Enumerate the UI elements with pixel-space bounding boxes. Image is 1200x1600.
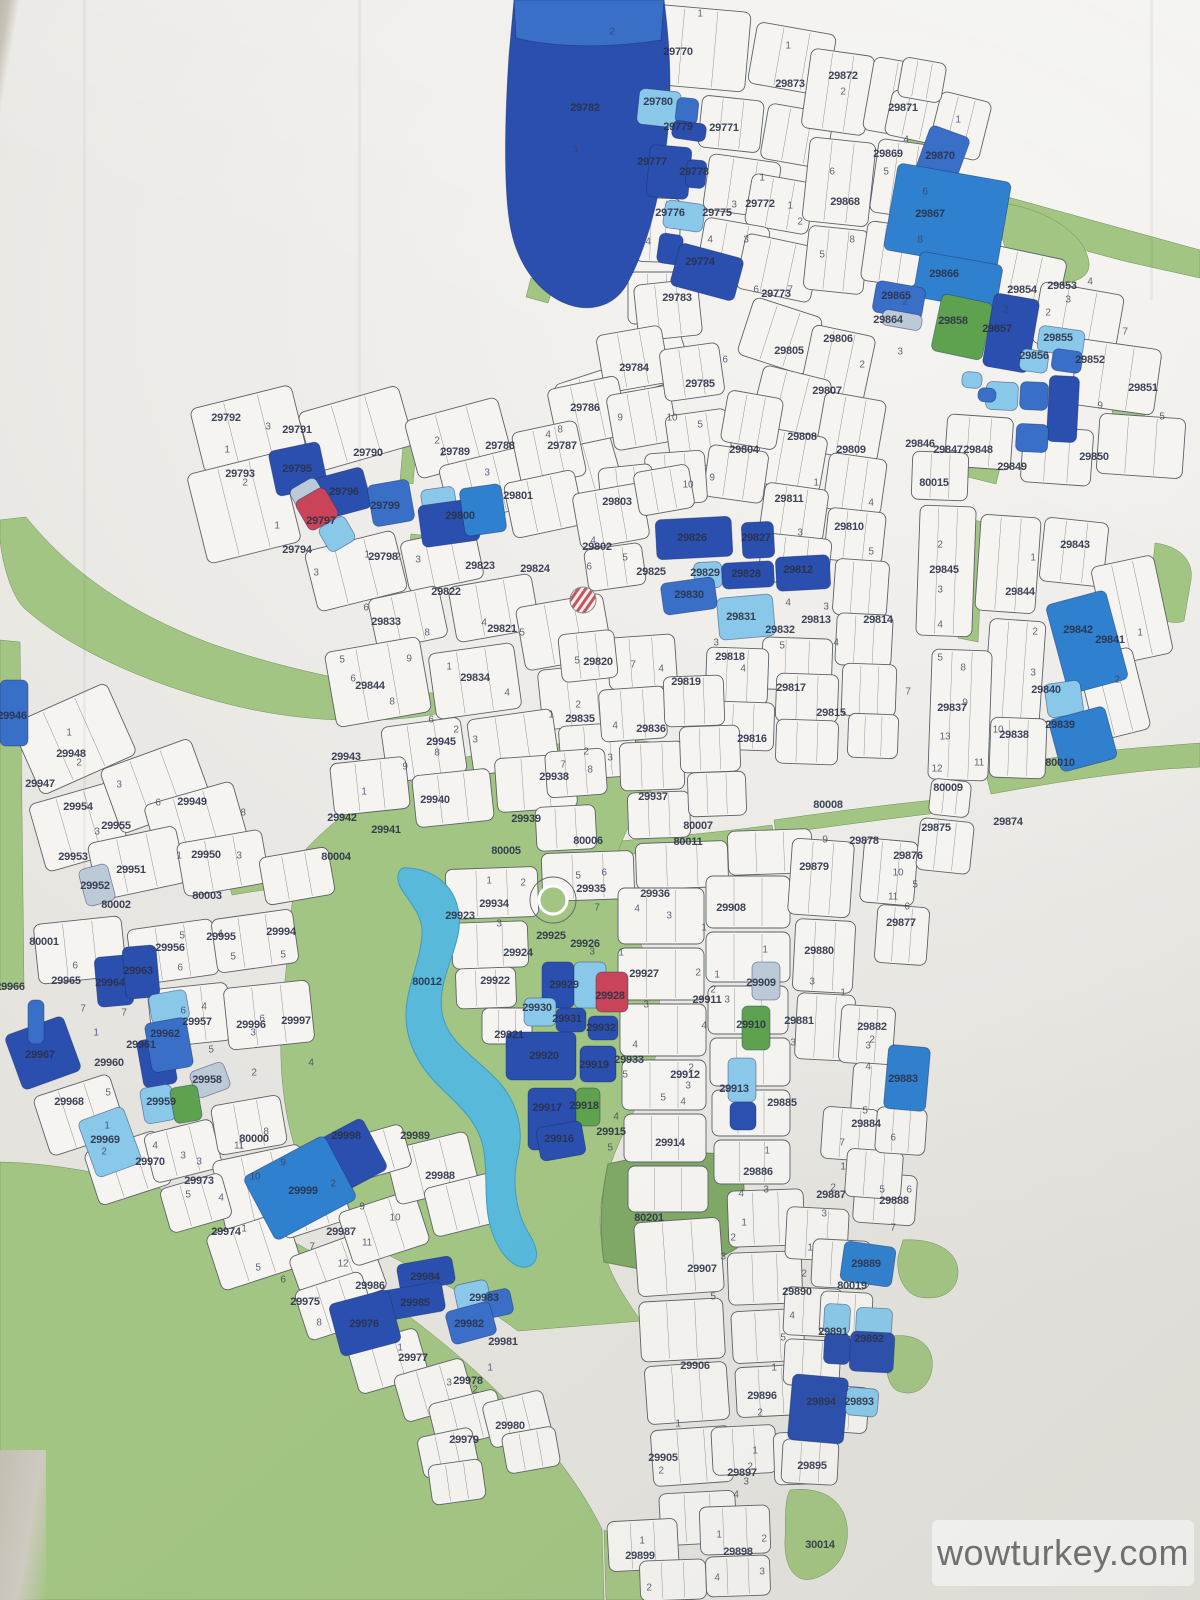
parcel-number: 29874 [993,816,1023,828]
parcel-number: 29915 [596,1126,626,1138]
lot-number: 8 [849,235,854,246]
lot-number: 4 [590,536,595,547]
lot-number: 3 [797,528,802,539]
lot-number: 3 [265,422,270,433]
lot-number: 8 [424,628,429,639]
parcel-number: 29923 [445,910,475,922]
lot-number: 2 [575,700,580,711]
lot-number: 1 [714,970,719,981]
lot-number: 1 [176,851,181,862]
lot-number: 2 [688,1063,693,1074]
lot-number: 2 [801,1269,806,1280]
parcel-number: 29824 [520,563,550,575]
parcel-number: 29847 [933,444,963,456]
parcel-number: 29820 [583,656,613,668]
lot-number: 5 [622,1070,627,1081]
parcel-number: 29854 [1007,284,1037,296]
parcel-number: 29870 [925,150,955,162]
parcel-number: 29806 [823,333,853,345]
parcel-number: 29800 [445,510,475,522]
lot-number: 4 [785,598,790,609]
parcel-number: 29961 [126,1039,156,1051]
lot-number: 1 [639,1536,644,1547]
lot-number: 2 [859,360,864,371]
parcel-number: 29891 [818,1326,848,1338]
lot-number: 6 [601,868,606,879]
parcel-number: 80002 [101,899,131,911]
lot-number: 8 [316,1318,321,1329]
parcel-number: 29850 [1079,451,1109,463]
lot-number: 6 [904,902,909,913]
lot-number: 1 [741,1218,746,1229]
lot-number: 3 [821,1209,826,1220]
lot-number: 10 [683,480,694,491]
parcel-number: 29957 [182,1016,212,1028]
parcel-number: 80008 [813,799,843,811]
lot-number: 1 [104,1121,109,1132]
lot-number: 1 [813,478,818,489]
parcel-number: 29866 [929,268,959,280]
lot-number: 2 [695,968,700,979]
lot-number: 1 [618,948,623,959]
watermark-badge: wowturkey.com [932,1520,1194,1586]
parcel-number: 29836 [636,723,666,735]
parcel-number: 29780 [643,96,673,108]
lot-number: 11 [888,892,898,903]
lot-number: 4 [714,1573,719,1584]
parcel-number: 80007 [683,820,713,832]
lot-number: 4 [645,237,650,248]
lot-number: 5 [862,1106,867,1117]
lot-number: 2 [658,1466,663,1477]
parcel-number: 29796 [329,486,359,498]
parcel-number: 29877 [886,917,916,929]
lot-number: 5 [574,656,579,667]
lot-number: 1 [840,1162,845,1173]
lot-number: 1 [785,41,790,52]
lot-number: 8 [557,425,562,436]
lot-number: 2 [395,552,400,563]
lot-number: 3 [937,585,942,596]
lot-number: 7 [80,1004,85,1015]
lot-number: 2 [869,1035,874,1046]
parcel-number: 29963 [123,965,153,977]
parcel-number: 29998 [331,1130,361,1142]
lot-number: 7 [890,1223,895,1234]
parcel-number: 29875 [921,822,951,834]
parcel-number: 29834 [460,672,490,684]
lot-number: 5 [819,250,824,261]
paper-fold-line [83,0,86,870]
parcel-number: 80005 [491,845,521,857]
lot-number: 1 [66,728,71,739]
parcel-number: 29911 [693,994,722,1006]
lot-number: 3 [743,1477,748,1488]
lot-number: 1 [759,173,764,184]
lot-number: 7 [1122,327,1127,338]
lot-number: 5 [208,1045,213,1056]
lot-number: 4 [868,498,873,509]
parcel-number: 29782 [570,102,600,114]
lot-number: 3 [713,638,718,649]
lot-number: 9 [617,413,622,424]
parcel-number: 29899 [625,1550,655,1562]
lot-number: 3 [589,947,594,958]
parcel-number: 80201 [634,1212,664,1224]
parcel-number: 29983 [469,1292,499,1304]
lot-number: 9 [406,654,411,665]
parcel-number: 29898 [723,1546,753,1558]
lot-number: 5 [575,871,580,882]
parcel-number: 80006 [573,835,603,847]
zoning-map-photo: 2977029771297722977329873298722987129869… [0,0,1200,1600]
parcel-number: 29826 [677,532,707,544]
lot-number: 5 [280,950,285,961]
parcel-number: 29853 [1047,280,1077,292]
lot-number: 3 [666,911,671,922]
parcel-number: 29973 [184,1175,214,1187]
parcel-number: 29910 [736,1019,766,1031]
lot-number: 3 [607,753,612,764]
lot-number: 10 [893,868,904,879]
parcel-number: 29954 [63,801,93,813]
parcel-number: 29791 [282,424,312,436]
lot-number: 1 [274,521,279,532]
parcel-number: 29965 [51,975,81,987]
lot-number: 1 [361,787,366,798]
parcel-number: 29925 [536,930,566,942]
parcel-number: 29955 [101,820,131,832]
parcel-number: 29941 [371,824,401,836]
parcel-number: 29882 [857,1021,887,1033]
lot-number: 4 [504,688,509,699]
lot-number: 4 [1087,277,1092,288]
lot-number: 4 [634,904,639,915]
paper-fold-line [1150,0,1153,300]
parcel-number: 29959 [146,1096,176,1108]
parcel-number: 29969 [90,1134,120,1146]
parcel-number: 80015 [919,477,949,489]
lot-number: 2 [76,758,81,769]
lot-number: 1 [397,1343,402,1354]
parcel-number: 29987 [326,1226,356,1238]
parcel-number: 29912 [670,1069,700,1081]
lot-number: 5 [912,880,917,891]
lot-number: 6 [280,1275,285,1286]
lot-number: 4 [308,1058,313,1069]
lot-number: 4 [680,1097,685,1108]
lot-number: 10 [667,413,678,424]
parcel-number: 29844 [355,680,385,692]
parcel-number: 29816 [737,733,767,745]
parcel-number: 29922 [480,975,510,987]
parcel-number: 29810 [834,521,864,533]
lot-number: 9 [359,1202,364,1213]
lot-number: 3 [116,780,121,791]
parcel-number: 29873 [775,78,805,90]
parcel-number: 29909 [746,977,776,989]
lot-number: 8 [263,1127,268,1138]
lot-number: 7 [121,1008,126,1019]
lot-number: 3 [415,555,420,566]
parcel-number: 80019 [837,1280,867,1292]
parcel-number: 29867 [915,208,945,220]
lot-number: 3 [313,568,318,579]
parcel-number: 29935 [576,883,606,895]
parcel-number: 29809 [836,444,866,456]
parcel-number: 29942 [327,812,357,824]
parcel-number: 29976 [349,1318,379,1330]
parcel-number: 29797 [306,515,336,527]
lot-number: 2 [472,1385,477,1396]
parcel-number: 29818 [715,651,745,663]
parcel-number: 29880 [804,945,834,957]
lot-number: 6 [829,167,834,178]
lot-number: 1 [439,448,444,459]
lot-number: 4 [152,1141,157,1152]
lot-number: 5 [937,653,942,664]
parcel-number: 29804 [729,444,759,456]
parcel-number: 29795 [282,463,312,475]
parcel-number: 29777 [637,156,667,168]
lot-number: 5 [868,547,873,558]
lot-number: 2 [902,297,907,308]
parcel-number: 29814 [863,614,893,626]
lot-number: 9 [822,835,827,846]
parcel-number: 29929 [549,979,579,991]
lot-number: 1 [955,115,960,126]
lot-number: 8 [960,663,965,674]
parcel-number: 29962 [150,1028,180,1040]
lot-number: 5 [622,553,627,564]
lot-number: 5 [230,952,235,963]
parcel-number: 29799 [370,500,400,512]
lot-number: 3 [180,1151,185,1162]
parcel-number: 29905 [648,1452,678,1464]
parcel-number: 29857 [982,323,1012,335]
lot-number: 1 [787,201,792,212]
parcel-number: 29803 [602,496,632,508]
parcel-number: 29822 [431,586,461,598]
lot-number: 6 [177,963,182,974]
parcel-number: 29933 [614,1054,644,1066]
parcel-number: 29881 [784,1015,814,1027]
lot-number: 6 [72,961,77,972]
parcel-number: 29828 [731,568,761,580]
parcel-number: 29771 [709,122,739,134]
parcel-number: 29938 [539,771,569,783]
parcel-number: 29787 [547,440,577,452]
lot-number: 3 [446,1378,451,1389]
parcel-number: 29845 [929,564,959,576]
lot-number: 7 [560,760,565,771]
parcel-number: 29864 [873,314,903,326]
photo-background-corner [0,1450,46,1600]
lot-number: 5 [710,1292,715,1303]
lot-number: 2 [434,436,439,447]
lot-number: 2 [730,1233,735,1244]
lot-number: 4 [833,638,838,649]
lot-number: 1 [1030,553,1035,564]
parcel-number: 29968 [54,1096,84,1108]
lot-number: 7 [839,1138,844,1149]
parcel-number: 29844 [1005,586,1035,598]
lot-number: 6 [350,674,355,685]
lot-number: 2 [830,1183,835,1194]
parcel-number: 29894 [806,1396,836,1408]
lot-number: 7 [787,285,792,296]
lot-number: 2 [1114,675,1119,686]
parcel-number: 29921 [494,1029,524,1041]
parcel-number: 29825 [636,566,666,578]
lot-number: 5 [879,1185,884,1196]
parcel-number: 29792 [211,412,241,424]
lot-number: 9 [280,1158,285,1169]
parcel-number: 29975 [290,1296,320,1308]
parcel-number: 80010 [1045,757,1075,769]
parcel-number: 29794 [282,544,312,556]
lot-number: 2 [1045,308,1050,319]
parcel-number: 29946 [0,710,27,722]
lot-number: 4 [481,618,486,629]
lot-number: 3 [472,735,477,746]
parcel-number: 29812 [783,564,813,576]
lot-number: 1 [93,1028,98,1039]
parcel-number: 29994 [266,926,296,938]
parcel-number: 29936 [640,888,670,900]
lot-number: 1 [716,1530,721,1541]
lot-number: 5 [255,1263,260,1274]
parcel-number: 29906 [680,1360,710,1372]
lot-number: 6 [428,715,433,726]
parcel-number: 29889 [851,1258,881,1270]
lot-number: 7 [630,660,635,671]
parcel-number: 29947 [25,778,55,790]
lot-number: 2 [797,217,802,228]
parcel-number: 29988 [425,1170,455,1182]
lot-number: 4 [707,235,712,246]
parcel-number: 29849 [997,461,1027,473]
lot-number: 5 [179,931,184,942]
lot-number: 1 [364,550,369,561]
lot-number: 1 [446,662,451,673]
lot-number: 11 [974,758,984,769]
parcel-number: 29786 [570,402,600,414]
parcel-number: 29920 [529,1050,559,1062]
parcel-number: 29835 [565,713,595,725]
parcel-number: 29783 [662,292,692,304]
lot-number: 2 [710,985,715,996]
parcel-number: 29872 [828,70,858,82]
lot-number: 3 [484,468,489,479]
parcel-number: 29841 [1095,634,1125,646]
lot-number: 3 [743,235,748,246]
lot-number: 1 [548,710,553,721]
parcel-number: 29928 [595,990,625,1002]
parcel-number: 29974 [211,1226,241,1238]
parcel-number: 29985 [400,1297,430,1309]
lot-number: 6 [155,798,160,809]
lot-number: 8 [434,748,439,759]
parcel-number: 29989 [400,1130,430,1142]
parcel-number: 29926 [570,938,600,950]
lot-number: 5 [607,1143,612,1154]
lot-number: 4 [937,620,942,631]
parcel-number: 29776 [655,207,685,219]
parcel-number: 29833 [371,616,401,628]
lot-number: 7 [309,1242,314,1253]
lot-number: 3 [250,1028,255,1039]
lot-number: 3 [496,919,501,930]
parcel-number: 29855 [1043,332,1073,344]
parcel-number: 29868 [830,196,860,208]
lot-number: 2 [747,1462,752,1473]
lot-number: 6 [180,1006,185,1017]
lot-number: 6 [722,355,727,366]
parcel-number: 29919 [579,1059,609,1071]
parcel-number: 29950 [191,849,221,861]
lot-number: 8 [240,808,245,819]
lot-number: 3 [897,347,902,358]
parcel-number: 29964 [95,977,125,989]
parcel-number: 29784 [619,362,649,374]
lot-number: 3 [763,1185,768,1196]
parcel-number: 29952 [80,880,110,892]
parcel-number: 29986 [355,1280,385,1292]
lot-number: 4 [789,1311,794,1322]
parcel-number: 29917 [532,1102,562,1114]
lot-number: 3 [685,1081,690,1092]
lot-number: 1 [762,945,767,956]
lot-number: 4 [733,1490,738,1501]
parcel-number: 29848 [963,444,993,456]
parcel-number: 29785 [685,378,715,390]
parcel-number: 29798 [368,551,398,563]
lot-number: 3 [720,1252,725,1263]
lot-number: 5 [883,167,888,178]
lot-number: 4 [613,1112,618,1123]
lot-number: 2 [761,1534,766,1545]
parcel-number: 29916 [544,1133,574,1145]
lot-number: 9 [962,698,967,709]
lot-number: 1 [840,988,845,999]
parcel-number: 29888 [879,1195,909,1207]
lot-number: 3 [759,1567,764,1578]
parcel-number: 29979 [449,1434,479,1446]
parcel-number: 29943 [331,751,361,763]
parcel-number: 29827 [741,532,771,544]
lot-number: 2 [840,87,845,98]
lot-number: 1 [807,1243,812,1254]
parcel-number: 29770 [663,46,693,58]
parcel-number: 29907 [687,1263,717,1275]
parcel-number: 29823 [465,560,495,572]
lot-number: 4 [738,1189,743,1200]
parcel-number: 80001 [29,936,59,948]
lot-number: 13 [940,732,951,743]
lot-number: 3 [643,1000,648,1011]
lot-number: 2 [251,1068,256,1079]
parcel-number: 29978 [453,1375,483,1387]
lot-number: 4 [201,1002,206,1013]
lot-number: 3 [1065,295,1070,306]
parcel-number: 29960 [94,1057,124,1069]
parcel-number: 29838 [999,729,1029,741]
lot-number: 6 [922,187,927,198]
lot-number: 2 [609,27,614,38]
parcel-number: 29843 [1060,539,1090,551]
parcel-number: 29918 [569,1100,599,1112]
